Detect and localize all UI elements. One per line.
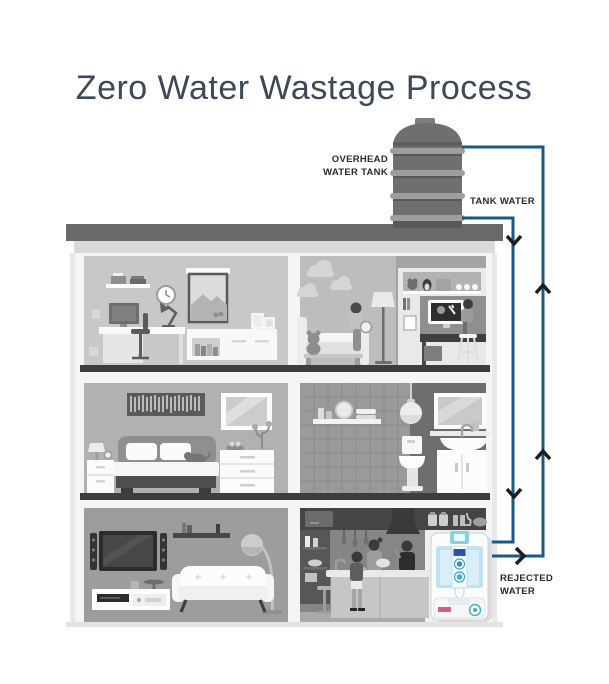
boy-figure (352, 552, 363, 563)
tank-water-label: TANK WATER (470, 196, 535, 207)
roof-ledge (74, 241, 495, 253)
toy-ducks-icon (456, 284, 462, 290)
page-title: Zero Water Wastage Process (76, 69, 532, 107)
stool-icon (459, 334, 477, 338)
floor-slab-2 (80, 493, 490, 500)
hand-mirror-icon (336, 402, 352, 418)
overhead-tank-label-line1: OVERHEAD (332, 154, 388, 165)
bed-base (116, 476, 216, 488)
zero-water-wastage-infographic: Zero Water Wastage Process (0, 0, 609, 684)
tiled-wall (300, 383, 410, 493)
rejected-water-label-line2: WATER (500, 586, 535, 597)
wall-shelf (106, 284, 150, 288)
tank-band (390, 193, 465, 199)
toy-teddy-icon (408, 280, 418, 290)
bathroom-shelf (313, 419, 381, 424)
overhead-water-tank (390, 118, 465, 228)
tank-band (390, 170, 465, 176)
kitchen-island (326, 570, 434, 577)
office-chair-icon (143, 313, 148, 330)
building-base-shadow (66, 622, 503, 627)
illustration-canvas: Zero Water Wastage Process (0, 0, 609, 684)
table-lamp-icon (88, 443, 105, 452)
pot-icon (473, 518, 487, 527)
frame-icon (404, 316, 416, 330)
left-outer-wall (70, 253, 75, 624)
water-purifier (431, 531, 492, 622)
wall-shelf (173, 533, 230, 538)
bar-stool-icon (317, 586, 332, 590)
floor-slab-1 (80, 365, 490, 372)
overhead-tank-label-line2: WATER TANK (323, 167, 388, 178)
tank-band (390, 148, 465, 154)
jars-icon (428, 514, 437, 526)
man-figure (402, 541, 413, 552)
books-icon (130, 279, 146, 284)
wall-switch (92, 310, 100, 319)
mixing-bowl-icon (376, 559, 390, 568)
mother-figure (351, 303, 362, 314)
drip-tray (448, 598, 470, 605)
right-outer-wall (492, 253, 497, 624)
floor-lamp-icon (371, 292, 395, 307)
ball-icon (361, 322, 372, 333)
nightstand (87, 460, 114, 493)
bathroom (300, 383, 490, 493)
toy-box-icon (436, 279, 451, 291)
toilet-icon (402, 436, 422, 454)
child-figure (463, 299, 473, 309)
photo-frame-icon (252, 314, 263, 328)
rejected-water-label-line1: REJECTED (500, 573, 553, 584)
bed-footboard (360, 330, 369, 365)
tank-band (390, 215, 465, 221)
towels-icon (356, 409, 376, 414)
books-icon (182, 523, 186, 533)
wall-socket (89, 347, 98, 356)
purifier-brand-badge (454, 549, 466, 556)
pillow (126, 443, 157, 460)
printer-icon (111, 276, 126, 284)
glasses-icon (453, 515, 458, 526)
photo-frame-icon (265, 318, 274, 328)
frame-icon (122, 577, 131, 589)
bottle-icon (318, 408, 324, 419)
mattress (113, 462, 219, 476)
